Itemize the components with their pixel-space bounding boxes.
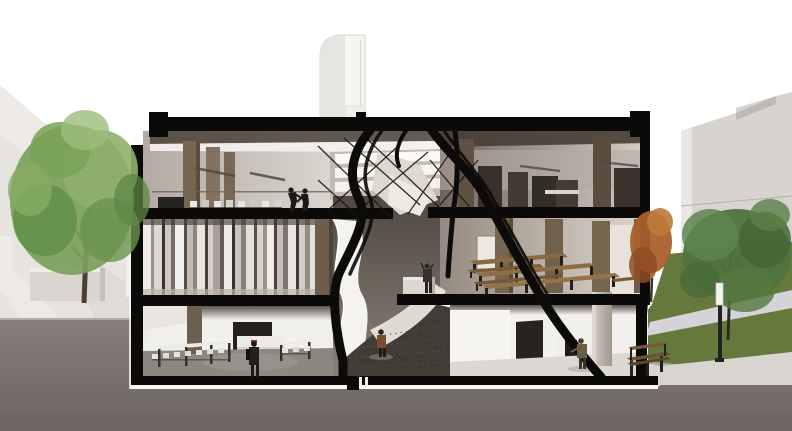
roof-cap-left xyxy=(149,112,168,137)
gallery-white-wall xyxy=(450,310,510,362)
workshop-shelf-5 xyxy=(614,168,640,211)
lower-slab-left xyxy=(131,295,337,306)
plaza-edge-line xyxy=(0,318,137,320)
autumn-canopy-light xyxy=(647,208,673,236)
workshop-pier-2 xyxy=(593,137,611,212)
left-tree-canopy-right xyxy=(114,174,150,226)
base-post-a xyxy=(359,377,362,385)
right-tree-canopy-left xyxy=(680,262,720,298)
lamp-base xyxy=(715,358,724,362)
workshop-shelf-4 xyxy=(556,180,578,211)
workshop-shelf-2 xyxy=(508,172,528,211)
far-left-wall xyxy=(0,236,12,291)
autumn-canopy-shade xyxy=(629,247,657,283)
right-tree-canopy-light xyxy=(682,209,738,261)
dining-pier-3 xyxy=(592,221,610,293)
autumn-tree-trunk xyxy=(651,278,652,302)
workshop-table xyxy=(545,190,579,194)
right-tree-canopy-low xyxy=(715,268,775,312)
slat-room-floor-line xyxy=(143,289,315,296)
rooftop-tower xyxy=(320,35,365,125)
left-tree-canopy-side xyxy=(8,164,52,216)
render-canvas xyxy=(0,0,792,431)
lower-slab-right xyxy=(397,294,650,305)
slat-room xyxy=(143,215,333,300)
roof-vent xyxy=(356,112,366,118)
lamp-head xyxy=(716,283,723,305)
mid-slab-right xyxy=(428,207,650,218)
slat-screen xyxy=(146,219,315,295)
studio-dark-desk xyxy=(158,197,184,209)
base-footing xyxy=(347,383,359,390)
right-tree-canopy-top xyxy=(750,199,790,231)
left-tree-canopy-crown xyxy=(61,110,109,150)
ground-floor-left-room xyxy=(143,306,337,380)
bench-back-post xyxy=(630,348,632,360)
backpack xyxy=(246,349,250,360)
bench-back-post xyxy=(664,344,666,356)
mid-slab-left xyxy=(131,208,393,219)
tower-shade xyxy=(320,35,345,125)
lamp-pole xyxy=(718,302,722,360)
sectional-render xyxy=(0,0,792,431)
planter-wall-a-side xyxy=(100,268,105,301)
base-slab xyxy=(131,376,658,385)
dining-room xyxy=(440,217,648,295)
roof-slab xyxy=(149,117,649,131)
slat-room-top-shade xyxy=(143,219,315,225)
base-white-strip xyxy=(131,385,658,389)
bench-leg xyxy=(646,362,649,376)
base-post-b xyxy=(365,377,368,385)
earth-base-shade xyxy=(0,412,792,431)
right-fin-wall xyxy=(636,300,647,380)
